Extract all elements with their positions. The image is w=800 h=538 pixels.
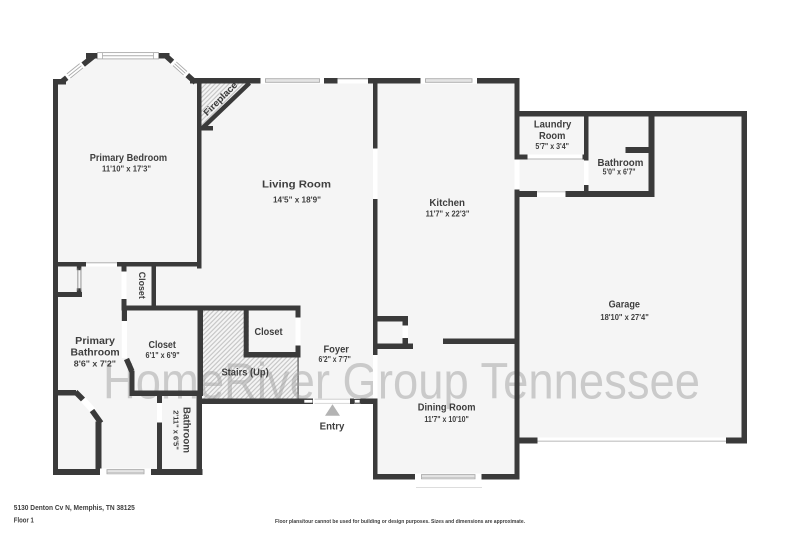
svg-text:Room: Room bbox=[539, 131, 565, 142]
svg-text:2'11" x 6'5": 2'11" x 6'5" bbox=[171, 410, 180, 450]
svg-text:Stairs (Up): Stairs (Up) bbox=[221, 368, 268, 379]
svg-text:Closet: Closet bbox=[149, 339, 177, 351]
svg-text:Living Room: Living Room bbox=[262, 178, 331, 190]
svg-text:11'7" x 10'10": 11'7" x 10'10" bbox=[424, 415, 469, 424]
svg-text:Foyer: Foyer bbox=[323, 344, 349, 356]
svg-text:HomeRiver Group Tennessee: HomeRiver Group Tennessee bbox=[103, 352, 700, 409]
svg-text:Primary Bedroom: Primary Bedroom bbox=[90, 152, 167, 164]
svg-text:Floor plans/tour cannot be use: Floor plans/tour cannot be used for buil… bbox=[275, 519, 525, 525]
svg-text:5'7" x 3'4": 5'7" x 3'4" bbox=[535, 142, 569, 151]
svg-text:Closet: Closet bbox=[136, 272, 147, 300]
svg-text:11'7" x 22'3": 11'7" x 22'3" bbox=[426, 209, 470, 218]
svg-text:14'5" x 18'9": 14'5" x 18'9" bbox=[273, 196, 321, 205]
svg-text:Dining Room: Dining Room bbox=[418, 401, 476, 413]
svg-text:8'6" x 7'2": 8'6" x 7'2" bbox=[74, 359, 116, 368]
svg-text:6'1" x 6'9": 6'1" x 6'9" bbox=[146, 351, 180, 360]
svg-text:6'2" x 7'7": 6'2" x 7'7" bbox=[319, 355, 351, 364]
svg-text:5'0" x 6'7": 5'0" x 6'7" bbox=[603, 167, 636, 176]
svg-text:Primary: Primary bbox=[75, 336, 115, 347]
svg-text:Bathroom: Bathroom bbox=[181, 407, 192, 453]
svg-text:Kitchen: Kitchen bbox=[429, 197, 465, 209]
svg-text:Bathroom: Bathroom bbox=[71, 348, 120, 359]
svg-text:18'10" x 27'4": 18'10" x 27'4" bbox=[600, 313, 649, 322]
svg-text:Entry: Entry bbox=[320, 420, 345, 432]
svg-text:Garage: Garage bbox=[609, 299, 641, 311]
svg-text:5130 Denton Cv N, Memphis, TN: 5130 Denton Cv N, Memphis, TN 38125 bbox=[14, 503, 135, 512]
svg-text:Floor 1: Floor 1 bbox=[14, 515, 34, 524]
svg-text:Closet: Closet bbox=[255, 326, 283, 338]
svg-text:Laundry: Laundry bbox=[534, 120, 572, 131]
svg-text:11'10" x 17'3": 11'10" x 17'3" bbox=[102, 164, 151, 173]
